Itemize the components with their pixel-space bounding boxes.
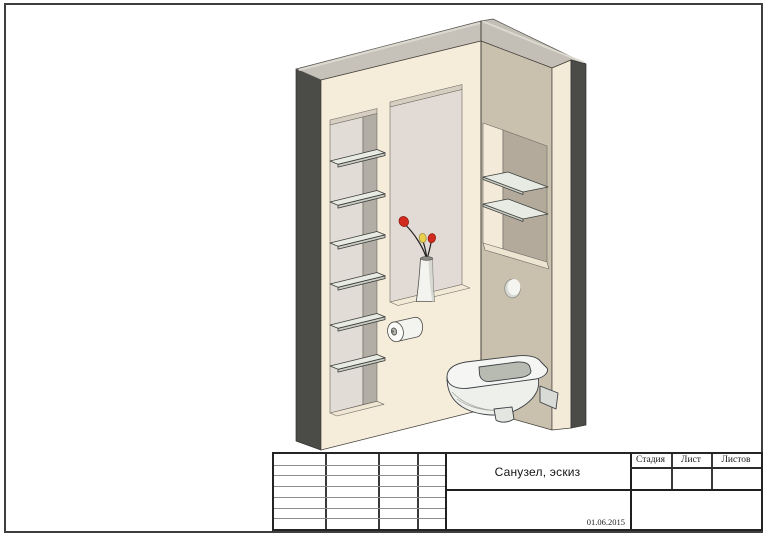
date-cell: 01.06.2015 [445, 489, 630, 529]
drawing-sheet: { "sheet": { "title": "Санузел, эскиз", … [0, 0, 770, 535]
right-niche [483, 123, 549, 269]
left-wall-edge-dark [296, 69, 321, 450]
sheets-value-cell [711, 467, 761, 489]
right-wall-edge-dark [571, 60, 586, 428]
stage-header-cell: Стадия [630, 454, 671, 467]
toilet-outlet [494, 407, 514, 422]
right-wall-end-face [552, 60, 571, 430]
sheet-header-cell: Лист [671, 454, 711, 467]
sheet-date: 01.06.2015 [587, 517, 625, 527]
stage-value-cell [630, 467, 671, 489]
approvals-empty-cell [630, 491, 761, 529]
sheet-value-cell [671, 467, 711, 489]
sheets-header-cell: Листов [711, 454, 761, 467]
right-niche-back [503, 130, 547, 262]
flush-button [505, 279, 521, 298]
vase-opening [421, 257, 433, 261]
project-title: Санузел, эскиз [495, 465, 581, 479]
title-block: Санузел, эскиз 01.06.2015 Стадия Лист Ли… [272, 452, 763, 531]
project-title-cell: Санузел, эскиз [445, 454, 630, 489]
revision-grid [274, 454, 445, 529]
right-niche-jamb [483, 123, 503, 251]
